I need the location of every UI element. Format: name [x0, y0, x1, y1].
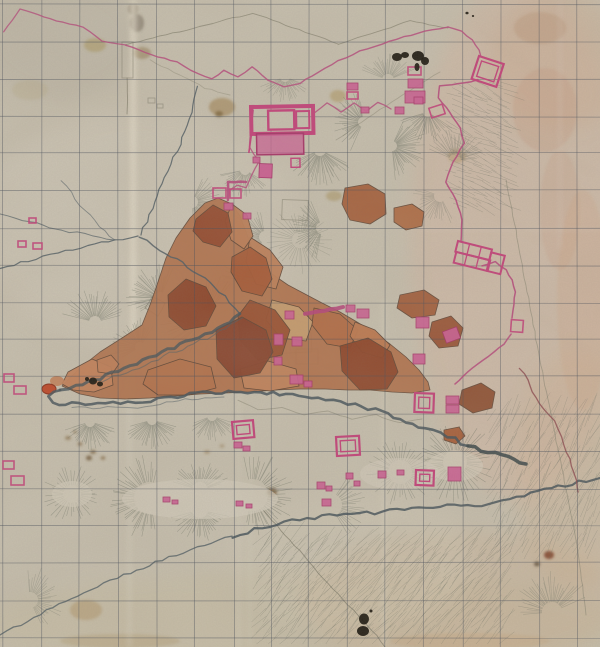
paper-grain-layer — [0, 0, 600, 647]
paper-grain — [0, 0, 600, 647]
scanned-map — [0, 0, 600, 647]
map-canvas — [0, 0, 600, 647]
